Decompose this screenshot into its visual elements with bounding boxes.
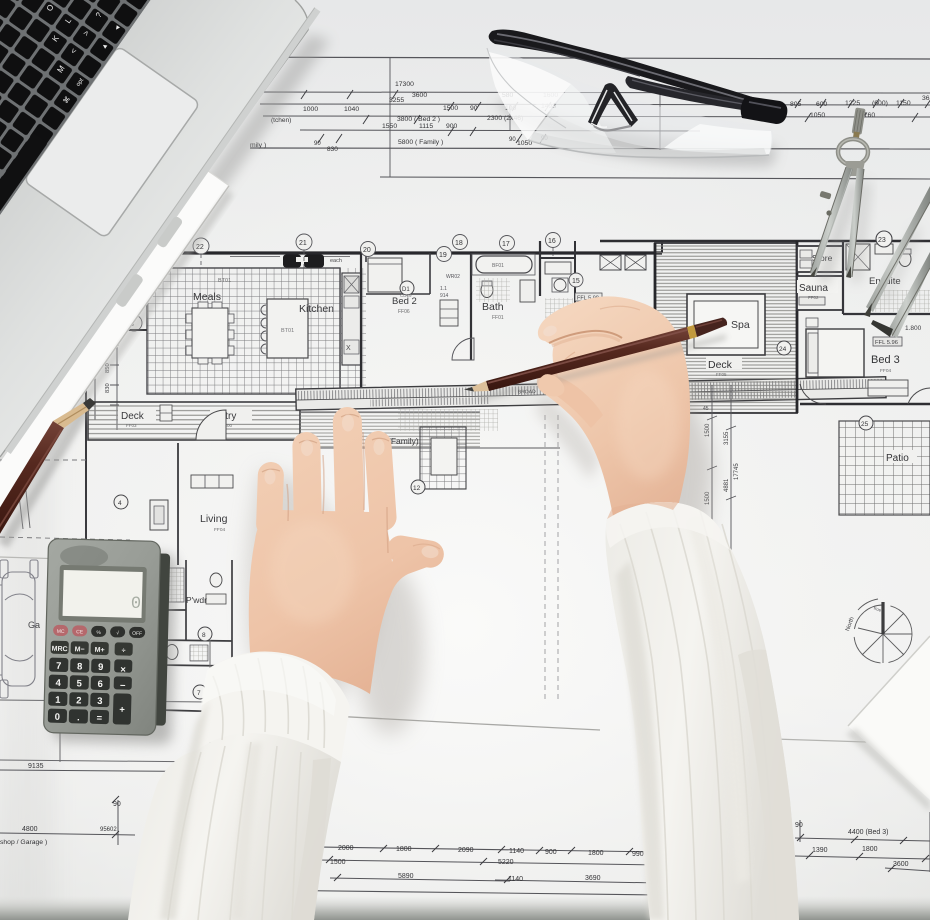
svg-text:45: 45: [703, 406, 709, 412]
svg-text:1800: 1800: [862, 846, 878, 853]
svg-text:600: 600: [816, 101, 828, 108]
svg-text:1500: 1500: [443, 105, 458, 112]
svg-text:2: 2: [76, 695, 82, 706]
svg-text:3600: 3600: [412, 92, 427, 99]
svg-text:900: 900: [446, 123, 458, 130]
svg-text:830: 830: [105, 383, 111, 393]
svg-text:Living: Living: [200, 513, 228, 525]
svg-text:1550: 1550: [382, 123, 397, 130]
svg-text:+: +: [119, 704, 125, 715]
svg-text:1.1: 1.1: [440, 286, 447, 292]
svg-text:MC: MC: [57, 629, 65, 635]
svg-text:X: X: [346, 345, 351, 352]
svg-text:7: 7: [197, 690, 201, 697]
svg-text:FF05: FF05: [716, 372, 727, 377]
svg-text:M−: M−: [75, 646, 85, 653]
svg-text:7: 7: [56, 661, 62, 672]
svg-text:P'wdr: P'wdr: [186, 595, 207, 605]
svg-text:1000: 1000: [303, 106, 318, 113]
svg-text:9: 9: [98, 662, 104, 673]
svg-text:20: 20: [363, 247, 371, 254]
svg-text:1050: 1050: [810, 112, 825, 119]
svg-text:Kitchen: Kitchen: [299, 303, 334, 315]
svg-text:1140: 1140: [509, 848, 524, 855]
svg-text:FF03: FF03: [126, 423, 137, 428]
svg-text:BF01: BF01: [492, 263, 504, 269]
svg-text:17745: 17745: [734, 463, 740, 480]
svg-text:√: √: [116, 629, 119, 636]
svg-text:90: 90: [509, 137, 516, 143]
svg-text:36: 36: [922, 95, 930, 102]
svg-text:3690: 3690: [585, 875, 601, 882]
svg-text:1140: 1140: [508, 876, 523, 883]
svg-text:2000: 2000: [338, 845, 354, 852]
svg-text:.: .: [77, 712, 80, 723]
svg-text:MRC: MRC: [52, 646, 68, 653]
svg-text:3155: 3155: [724, 431, 730, 445]
svg-text:BT01: BT01: [281, 328, 294, 334]
svg-text:1.800: 1.800: [905, 325, 922, 332]
svg-text:(Family): (Family): [388, 436, 419, 446]
svg-text:90: 90: [470, 105, 478, 112]
svg-text:Bed 3: Bed 3: [871, 354, 900, 366]
svg-text:21: 21: [299, 240, 307, 247]
svg-text:1800: 1800: [588, 850, 604, 857]
svg-text:(600): (600): [872, 100, 888, 107]
svg-text:1150: 1150: [896, 100, 911, 107]
svg-text:4881: 4881: [724, 478, 730, 492]
svg-text:3255: 3255: [389, 97, 404, 104]
svg-text:25: 25: [861, 421, 869, 428]
svg-text:5220: 5220: [498, 859, 514, 866]
svg-text:FF01: FF01: [492, 315, 504, 321]
svg-text:90: 90: [113, 801, 121, 808]
svg-text:90: 90: [795, 822, 803, 829]
svg-text:Spa: Spa: [731, 319, 750, 331]
svg-text:95602: 95602: [100, 827, 117, 833]
svg-text:8: 8: [202, 632, 206, 639]
svg-text:FFL 5.96: FFL 5.96: [875, 340, 898, 346]
svg-text:2090: 2090: [458, 847, 474, 854]
svg-text:17: 17: [502, 241, 510, 248]
svg-text:3: 3: [97, 696, 103, 707]
svg-text:CD19: CD19: [400, 293, 412, 298]
svg-text:%: %: [96, 630, 101, 636]
svg-text:90: 90: [314, 141, 321, 147]
svg-text:Deck: Deck: [121, 411, 145, 422]
svg-text:1: 1: [55, 695, 61, 706]
svg-text:4800: 4800: [22, 826, 38, 833]
svg-text:÷: ÷: [122, 647, 126, 654]
svg-text:12: 12: [413, 485, 421, 492]
svg-text:914: 914: [440, 293, 449, 299]
svg-text:OFF: OFF: [132, 631, 142, 637]
svg-text:5: 5: [76, 678, 82, 689]
svg-text:9135: 9135: [28, 763, 44, 770]
svg-text:15: 15: [572, 278, 580, 285]
svg-text:990: 990: [632, 851, 644, 858]
svg-text:5800 ( Family ): 5800 ( Family ): [398, 139, 443, 146]
svg-text:23: 23: [878, 237, 886, 244]
svg-text:3800 ( Bed 2 ): 3800 ( Bed 2 ): [397, 116, 440, 123]
svg-text:CE: CE: [76, 629, 84, 635]
svg-text:900: 900: [545, 849, 557, 856]
svg-text:0: 0: [131, 595, 142, 614]
svg-text:1115: 1115: [419, 123, 433, 130]
svg-text:17300: 17300: [395, 81, 414, 88]
svg-text:M+: M+: [95, 647, 105, 654]
svg-text:1225: 1225: [845, 100, 860, 107]
svg-text:1500: 1500: [330, 859, 346, 866]
svg-text:FF06: FF06: [398, 309, 410, 315]
svg-text:Patio: Patio: [886, 453, 909, 464]
svg-text:BT01: BT01: [218, 278, 231, 284]
svg-text:4400 (Bed 3): 4400 (Bed 3): [848, 829, 888, 836]
svg-text:shop / Garage ): shop / Garage ): [0, 839, 47, 846]
svg-text:8: 8: [77, 661, 83, 672]
svg-text:3600: 3600: [893, 861, 909, 868]
svg-text:FF04: FF04: [880, 368, 892, 374]
svg-text:Sauna: Sauna: [799, 283, 828, 294]
svg-text:Ga: Ga: [28, 620, 40, 630]
svg-text:=: =: [96, 713, 102, 724]
svg-text:1800: 1800: [396, 846, 412, 853]
svg-text:Deck: Deck: [708, 359, 733, 371]
svg-text:6: 6: [97, 679, 103, 690]
svg-text:5890: 5890: [398, 873, 414, 880]
svg-text:WR02: WR02: [446, 274, 460, 280]
svg-text:−: −: [120, 680, 126, 691]
svg-text:4: 4: [55, 678, 61, 689]
svg-text:FF02: FF02: [808, 295, 819, 300]
svg-text:18: 18: [455, 240, 463, 247]
svg-text:FF04: FF04: [214, 527, 226, 533]
svg-text:805: 805: [790, 101, 802, 108]
svg-text:1040: 1040: [344, 106, 359, 113]
svg-text:0: 0: [55, 712, 61, 723]
svg-text:19: 19: [439, 252, 447, 259]
svg-text:4: 4: [118, 500, 122, 507]
svg-text:16: 16: [548, 238, 556, 245]
svg-text:24: 24: [779, 346, 787, 353]
svg-text:each: each: [330, 258, 342, 264]
svg-text:830: 830: [327, 146, 338, 153]
svg-text:1390: 1390: [812, 847, 828, 854]
svg-text:Bath: Bath: [482, 301, 504, 313]
svg-text:Meals: Meals: [193, 291, 221, 303]
svg-text:×: ×: [120, 664, 126, 675]
